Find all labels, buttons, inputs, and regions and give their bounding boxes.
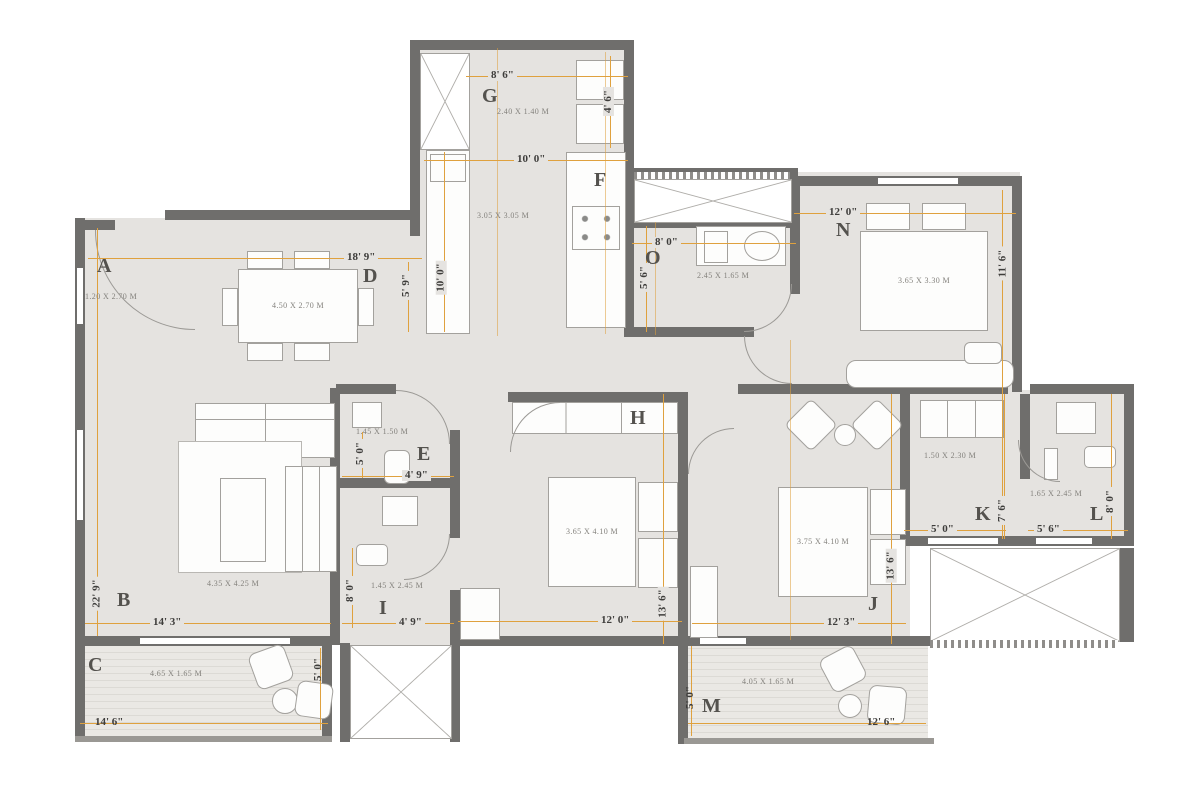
wall	[340, 643, 350, 742]
wall	[508, 392, 688, 402]
room-label-g: G	[482, 86, 498, 106]
room-label-b: B	[117, 590, 130, 610]
window	[928, 538, 998, 544]
dim-line	[97, 228, 98, 636]
balcony-table	[838, 694, 862, 718]
room-size-n: 3.65 X 3.30 M	[861, 232, 987, 330]
room-size-o: 2.45 X 1.65 M	[697, 272, 749, 280]
room-size-k: 1.50 X 2.30 M	[924, 452, 976, 460]
dim-k-height: 7' 6"	[997, 496, 1008, 525]
dim-line	[342, 476, 454, 477]
room-size-b: 4.35 X 4.25 M	[207, 580, 259, 588]
pillow	[870, 489, 906, 535]
room-label-h: H	[630, 408, 646, 428]
room-size-i: 1.45 X 2.45 M	[371, 582, 423, 590]
grid-line	[790, 340, 791, 640]
room-label-l: L	[1090, 504, 1103, 524]
room-size-e: 1.45 X 1.50 M	[356, 428, 408, 436]
wall	[1012, 176, 1022, 392]
dim-g-width: 8' 6"	[488, 70, 517, 81]
room-size-c: 4.65 X 1.65 M	[150, 670, 202, 678]
duct-shaft	[350, 645, 452, 739]
room-size-h: 3.65 X 4.10 M	[549, 478, 635, 586]
dim-e-height: 5' 0"	[355, 439, 366, 468]
wall	[410, 40, 634, 50]
dim-l-height: 8' 0"	[1105, 487, 1116, 516]
coffee-table	[220, 478, 266, 562]
dim-j-height: 13' 6"	[886, 548, 897, 582]
room-label-c: C	[88, 655, 102, 675]
wall	[165, 210, 420, 220]
pillow	[922, 203, 966, 230]
wall	[410, 40, 420, 236]
floor-plan: 4.50 X 2.70 M 3.65 X 3.30 M 3.65 X 4.10 …	[0, 0, 1200, 800]
wall	[1030, 384, 1134, 394]
duct-shaft	[634, 179, 792, 223]
dim-f-height: 10' 0"	[436, 260, 447, 294]
dim-f-width: 10' 0"	[514, 154, 548, 165]
dim-line	[1002, 190, 1003, 539]
room-size-a: 1.20 X 2.70 M	[85, 293, 137, 301]
pillow	[638, 538, 678, 588]
duct-shaft	[420, 53, 470, 150]
washbasin	[382, 496, 418, 526]
dresser	[690, 566, 718, 638]
dim-e-width: 4' 9"	[402, 470, 431, 481]
wc	[356, 544, 388, 566]
wall	[85, 220, 115, 230]
desk	[460, 588, 500, 640]
wall	[336, 384, 396, 394]
wardrobe-k	[920, 400, 1004, 438]
window	[1036, 538, 1092, 544]
side-table	[834, 424, 856, 446]
room-label-a: A	[97, 256, 111, 276]
dining-chair	[294, 343, 330, 361]
dim-line	[444, 152, 445, 332]
room-size-f: 3.05 X 3.05 M	[477, 212, 529, 220]
washbasin	[744, 231, 780, 261]
dim-l-width: 5' 6"	[1034, 524, 1063, 535]
duct-shaft	[930, 548, 1120, 642]
shaft-tooth-edge	[930, 640, 1118, 648]
wc	[704, 231, 728, 263]
wall	[624, 327, 754, 337]
side-sofa	[285, 466, 337, 572]
room-label-n: N	[836, 220, 850, 240]
dim-m-height: 5' 0"	[685, 683, 696, 712]
balcony-rail	[75, 736, 332, 742]
dim-h-height: 13' 6"	[658, 586, 669, 620]
window	[700, 638, 746, 644]
bed-h: 3.65 X 4.10 M	[548, 477, 636, 587]
dim-j-width: 12' 3"	[824, 617, 858, 628]
room-size-d: 4.50 X 2.70 M	[239, 270, 357, 342]
room-label-f: F	[594, 170, 606, 190]
room-size-m: 4.05 X 1.65 M	[742, 678, 794, 686]
balcony-chair	[294, 680, 335, 721]
dining-chair	[247, 343, 283, 361]
room-size-j: 3.75 X 4.10 M	[779, 488, 867, 596]
wall	[678, 402, 688, 645]
room-label-j: J	[868, 594, 878, 614]
dim-n-width: 12' 0"	[826, 207, 860, 218]
dim-c-height: 5' 0"	[313, 655, 324, 684]
balcony-rail	[684, 738, 934, 744]
dim-h-width: 12' 0"	[598, 615, 632, 626]
dim-line	[1111, 394, 1112, 539]
shaft-tooth-edge	[634, 172, 790, 179]
window	[878, 178, 958, 184]
room-size-l: 1.65 X 2.45 M	[1030, 490, 1082, 498]
room-label-e: E	[417, 444, 430, 464]
dim-line	[458, 621, 682, 622]
window	[140, 638, 290, 644]
dim-n-height: 11' 6"	[997, 247, 1008, 281]
dim-line	[692, 623, 906, 624]
dining-chair	[247, 251, 283, 269]
room-label-k: K	[975, 504, 991, 524]
dim-d-height: 5' 9"	[401, 271, 412, 300]
dim-b-width: 14' 3"	[150, 617, 184, 628]
dim-o-width: 8' 0"	[652, 237, 681, 248]
dim-b-height: 22' 9"	[92, 576, 103, 610]
washbasin	[1056, 402, 1096, 434]
wall	[1124, 394, 1134, 546]
dim-d-width: 18' 9"	[344, 252, 378, 263]
bed-j: 3.75 X 4.10 M	[778, 487, 868, 597]
dim-o-height: 5' 6"	[639, 263, 650, 292]
dim-k-width: 5' 0"	[928, 524, 957, 535]
dining-table: 4.50 X 2.70 M	[238, 269, 358, 343]
utility-appliance	[576, 104, 624, 144]
dim-i-width: 4' 9"	[396, 617, 425, 628]
washbasin	[352, 402, 382, 428]
dim-c-width: 14' 6"	[92, 717, 126, 728]
dining-chair	[294, 251, 330, 269]
chaise-lounge	[846, 360, 1014, 388]
dim-m-width: 12' 6"	[864, 717, 898, 728]
chaise-back	[964, 342, 1002, 364]
room-label-i: I	[379, 598, 387, 618]
room-label-d: D	[363, 266, 377, 286]
pillow	[866, 203, 910, 230]
room-label-m: M	[702, 696, 721, 716]
window	[77, 268, 83, 324]
window	[77, 430, 83, 520]
dim-i-height: 8' 0"	[345, 576, 356, 605]
dim-line	[85, 623, 331, 624]
kitchen-hob	[572, 206, 620, 250]
room-size-g: 2.40 X 1.40 M	[497, 108, 549, 116]
bed-n: 3.65 X 3.30 M	[860, 231, 988, 331]
dim-g-height: 4' 6"	[603, 87, 614, 116]
dim-line	[891, 394, 892, 644]
dining-chair	[222, 288, 238, 326]
utility-appliance	[576, 60, 624, 100]
pillow	[638, 482, 678, 532]
kitchen-sink	[430, 154, 466, 182]
dining-chair	[358, 288, 374, 326]
